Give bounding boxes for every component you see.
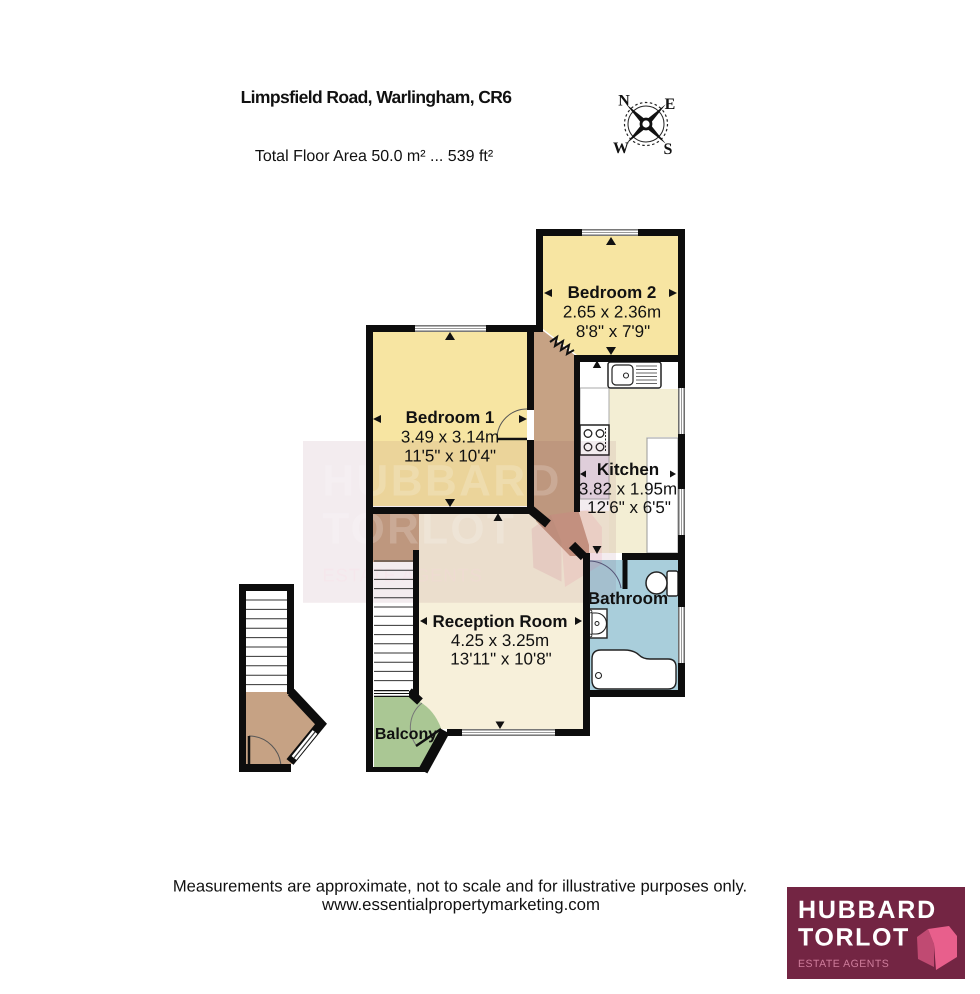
svg-text:2.65 x 2.36m: 2.65 x 2.36m [563, 303, 661, 322]
svg-text:Total Floor Area 50.0 m² ... 5: Total Floor Area 50.0 m² ... 539 ft² [255, 148, 494, 165]
svg-text:TORLOT: TORLOT [798, 923, 910, 951]
svg-text:Bedroom 2: Bedroom 2 [568, 283, 657, 302]
svg-text:Reception Room: Reception Room [432, 612, 567, 631]
svg-text:Bedroom 1: Bedroom 1 [406, 408, 495, 427]
svg-text:ESTATE AGENTS: ESTATE AGENTS [322, 566, 483, 587]
svg-text:Kitchen: Kitchen [597, 460, 659, 479]
svg-text:12'6" x 6'5": 12'6" x 6'5" [587, 498, 671, 517]
svg-text:Bathroom: Bathroom [588, 589, 668, 608]
svg-text:13'11" x 10'8": 13'11" x 10'8" [450, 650, 551, 669]
svg-text:11'5" x 10'4": 11'5" x 10'4" [404, 447, 496, 466]
svg-text:4.25 x 3.25m: 4.25 x 3.25m [451, 631, 549, 650]
svg-text:3.82 x 1.95m: 3.82 x 1.95m [579, 480, 677, 499]
svg-text:Balcony: Balcony [375, 726, 437, 743]
svg-text:E: E [665, 96, 676, 113]
svg-text:3.49 x 3.14m: 3.49 x 3.14m [401, 428, 499, 447]
svg-text:www.essentialpropertymarketing: www.essentialpropertymarketing.com [321, 895, 600, 914]
svg-text:N: N [618, 93, 630, 110]
svg-text:W: W [613, 140, 629, 157]
svg-text:ESTATE AGENTS: ESTATE AGENTS [798, 958, 889, 970]
svg-text:8'8" x 7'9": 8'8" x 7'9" [576, 322, 650, 341]
svg-text:S: S [664, 141, 673, 158]
svg-text:Measurements are approximate,: Measurements are approximate, not to sca… [173, 877, 747, 896]
svg-text:HUBBARD: HUBBARD [798, 896, 937, 924]
svg-text:Limpsfield Road, Warlingham, C: Limpsfield Road, Warlingham, CR6 [241, 87, 513, 107]
